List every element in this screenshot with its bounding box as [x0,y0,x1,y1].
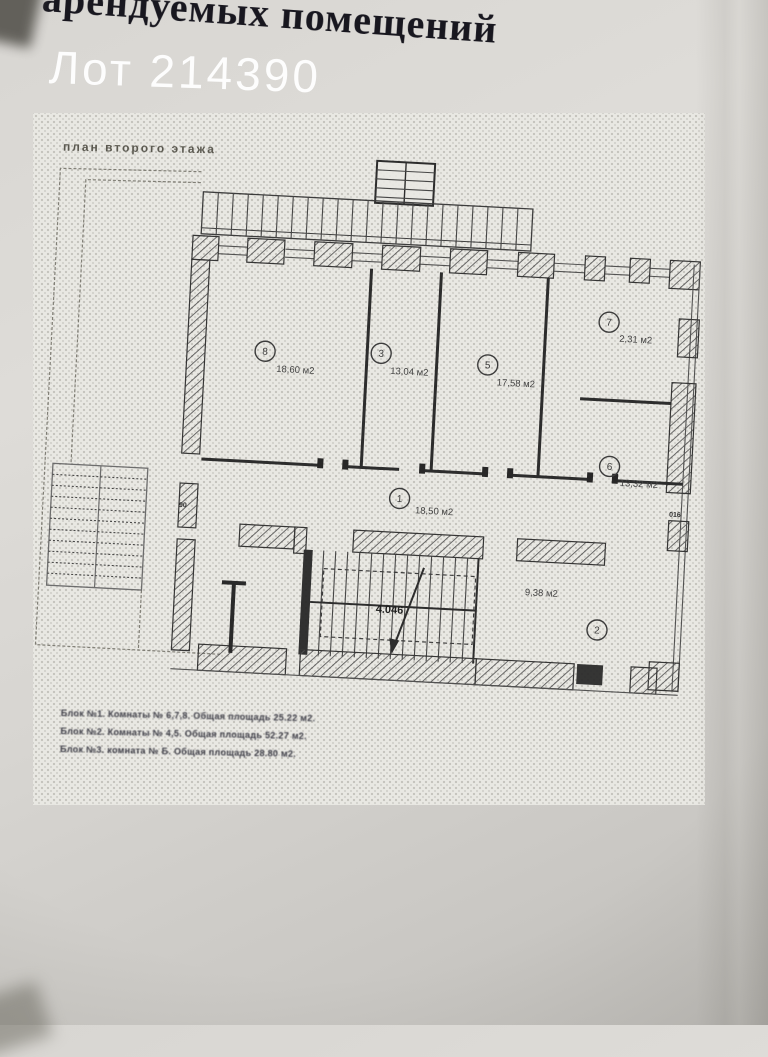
room-label-5: 5 17,58 м2 [477,354,537,390]
room-number-badge: 6 [606,462,613,473]
room-label-1: 1 18,50 м2 [389,488,455,518]
room-area-label: 9,38 м2 [525,587,558,600]
room-number-badge: 2 [594,625,601,636]
photo-shadow-bottom-left [0,981,53,1057]
room-label-6: 6 13,32 м2 [598,456,659,491]
room-label-7: 7 2,31 м2 [598,312,654,347]
block-legend: Блок №1. Комнаты № 6,7,8. Общая площадь … [60,704,316,763]
room-number-badge: 3 [378,349,385,360]
photo-shadow-top-left [0,0,45,48]
room-number-badge: 7 [606,318,613,329]
room-area-label: 17,58 м2 [497,377,536,390]
room-number-badge: 8 [262,347,269,358]
floor-plan-sheet: план второго этажа [33,113,705,805]
photographed-document: { "photo": { "header_title": "арендуемых… [0,0,768,1025]
corridor-walls [239,524,606,569]
top-wall [192,235,701,290]
room-area-label: 13,04 м2 [390,366,429,379]
t-wall [218,582,246,653]
bottom-wall [170,643,679,696]
photo-fold-shadow [696,0,768,1025]
door-width-label: 90 [179,502,187,509]
room-label-8: 8 18,60 м2 [254,341,316,377]
room-label-3: 3 13,04 м2 [370,343,430,379]
room-area-label: 18,50 м2 [415,505,454,518]
room-number-badge: 5 [485,360,492,371]
floor-plan-drawing: 4.046 90 016 8 18 [33,113,705,805]
interior-stair: 4.046 [298,550,478,664]
exterior-stair [47,463,148,590]
door-width-label: 016 [669,512,681,520]
left-wall [171,259,209,650]
room-area-label: 18,60 м2 [276,364,315,377]
right-wall [648,263,702,691]
top-stair [375,161,435,206]
room-number-badge: 1 [396,494,403,505]
room-area-label: 13,32 м2 [619,478,658,491]
lot-number-watermark: Лот 214390 [48,40,322,103]
room-area-label: 2,31 м2 [619,334,652,347]
room-label-2: 9,38 м2 2 [523,587,609,640]
stair-dimension-label: 4.046 [375,603,403,616]
